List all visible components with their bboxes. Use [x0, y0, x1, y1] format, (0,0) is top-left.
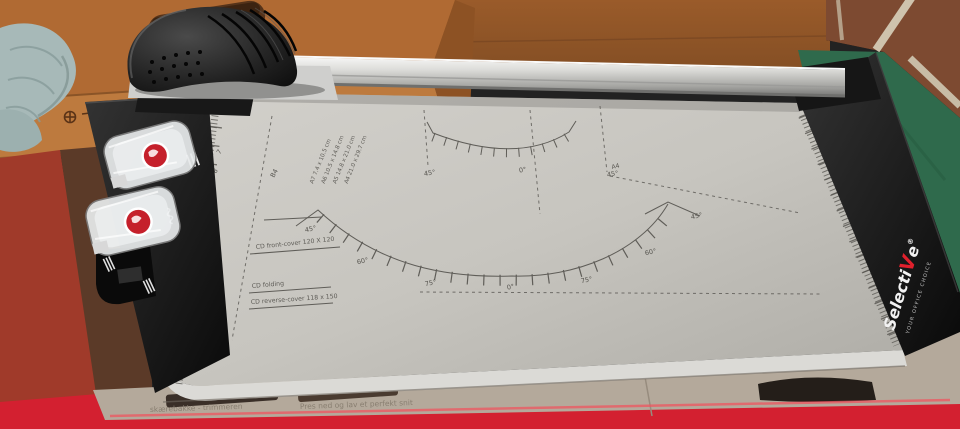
- paper-trimmer: 7 8 9 10 11 12 13 14 15 16 17: [83, 7, 960, 402]
- photo-paper-trimmer-scene: skærebakke - trimmeren Pres ned og lav e…: [0, 0, 960, 429]
- angle-label: 0°: [518, 165, 527, 174]
- cutting-bed: [164, 92, 903, 386]
- shadow-blob: [758, 377, 876, 402]
- scene-canvas: skærebakke - trimmeren Pres ned og lav e…: [0, 0, 960, 429]
